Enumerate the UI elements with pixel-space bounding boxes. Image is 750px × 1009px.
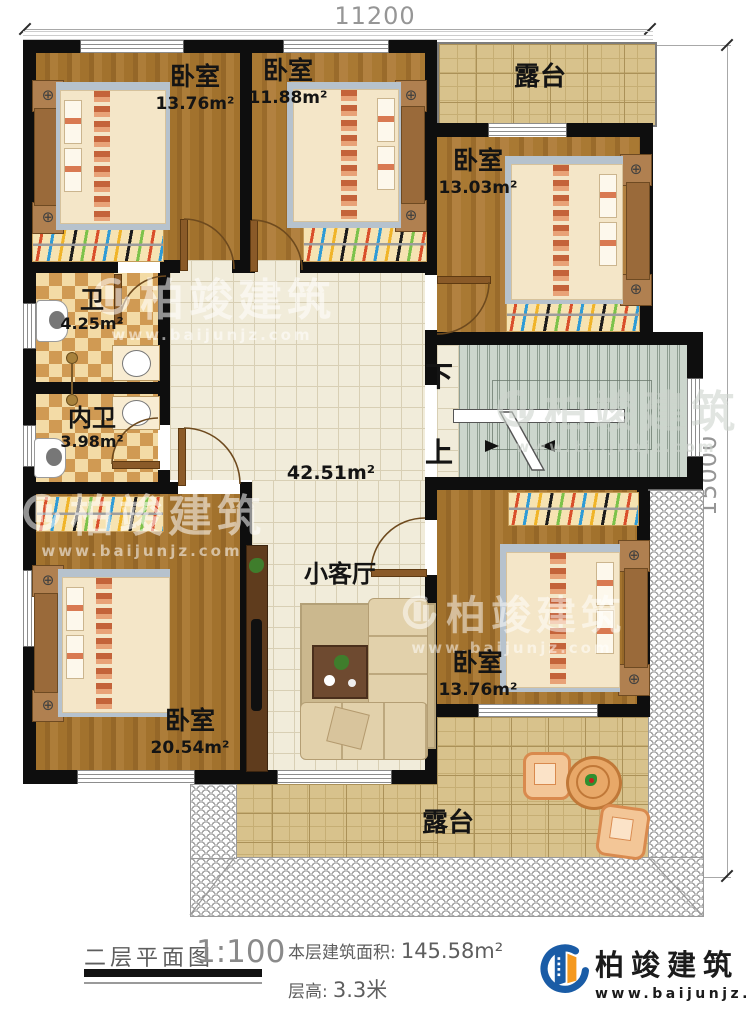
wall-segment [596,704,650,717]
brand-website: www.baijunjz.com [595,986,750,1002]
room-label-ensuite: 内卫 [60,406,124,431]
window [80,40,184,53]
brand-logo-icon [535,942,589,994]
room-label-bedroom-bottom-right: 卧室 [420,650,535,676]
wall-segment [23,482,178,494]
brand-logo: 柏竣建筑 www.baijunjz.com [535,942,750,1002]
plumbing-point [66,352,78,364]
floor-area-value: 145.58m² [401,939,503,963]
coffee-table [312,645,368,699]
window [283,40,389,53]
roof-band-bottom [190,857,704,917]
wall-segment [193,770,277,784]
tv-cabinet [246,545,268,772]
tv [251,619,262,711]
wall-segment [425,477,703,490]
room-area-bedroom-right: 13.03m² [418,180,538,198]
floor-height-label: 层高: [288,982,328,1002]
door-leaf [180,219,188,271]
dimension-top: 11200 [295,2,455,30]
wall-segment [437,704,478,717]
room-area-bath: 4.25m² [56,316,128,333]
floor-area-label: 本层建筑面积: [288,943,396,963]
window [23,303,36,349]
wall-segment [23,465,36,570]
door-leaf [112,461,160,469]
dimension-line-top [25,29,651,30]
door-leaf [250,220,258,272]
dimension-line-right [727,45,728,877]
title-underline-thick [84,969,262,977]
room-area-bedroom-bottom-right: 13.76m² [418,682,538,700]
terrace-chair [595,803,652,861]
stair-up-label: 上 [420,438,458,467]
wall-segment [687,455,703,477]
roof-band-right [648,490,704,917]
window [77,770,195,784]
room-label-terrace-top: 露台 [490,64,590,91]
door-leaf [437,276,491,284]
wall-segment [23,770,77,784]
room-area-bedroom-top-mid: 11.88m² [233,90,343,108]
window [478,704,598,717]
wall-segment [182,40,283,53]
wardrobe [303,227,427,262]
room-label-bedroom-top-mid: 卧室 [233,58,343,84]
room-label-bedroom-bottom-left: 卧室 [135,708,245,734]
room-area-hall: 42.51m² [271,464,391,484]
terrace-chair [523,752,571,800]
wardrobe [508,492,639,526]
floor-hall [170,260,425,480]
room-label-bedroom-right: 卧室 [423,148,533,174]
wardrobe [36,496,164,532]
wall-segment [687,345,703,378]
terrace-sliding-door [277,770,392,784]
roof-band-left [190,784,237,859]
wall-segment [23,382,170,394]
terrace-table [566,756,622,810]
bed: ⊕ ⊕ [32,565,174,720]
wall-segment [437,123,488,137]
floor-plan-page: 11200 15000 [0,0,750,1009]
wall-segment [425,490,437,520]
floor-height-value: 3.3米 [333,978,387,1002]
floor-area-note: 本层建筑面积: 145.58m² [288,938,503,963]
plant [249,558,264,573]
brand-company-name: 柏竣建筑 [595,942,750,984]
wall-segment [390,770,437,784]
room-area-bedroom-bottom-left: 20.54m² [130,740,250,758]
stair-down-label: 下 [420,362,458,391]
wall-segment [565,123,653,137]
door-leaf [178,428,186,486]
window [488,123,567,137]
dimension-extension-line [651,45,731,46]
plumbing-line [71,358,73,398]
eave-lines [23,31,653,40]
floor-height-note: 层高: 3.3米 [288,974,387,1004]
room-area-ensuite: 3.98m² [56,434,128,451]
window-stair-bay [687,378,703,457]
sink-counter [112,345,160,381]
room-label-living: 小客厅 [292,562,388,587]
room-label-bath: 卫 [72,288,112,313]
plan-scale: 1:100 [196,934,285,970]
plan-title: 二层平面图 [84,940,214,972]
plant [334,655,349,670]
title-underline-thin [84,982,262,984]
wall-segment [425,332,703,345]
room-label-terrace-bottom: 露台 [400,810,496,837]
stair-handrail [453,409,625,423]
